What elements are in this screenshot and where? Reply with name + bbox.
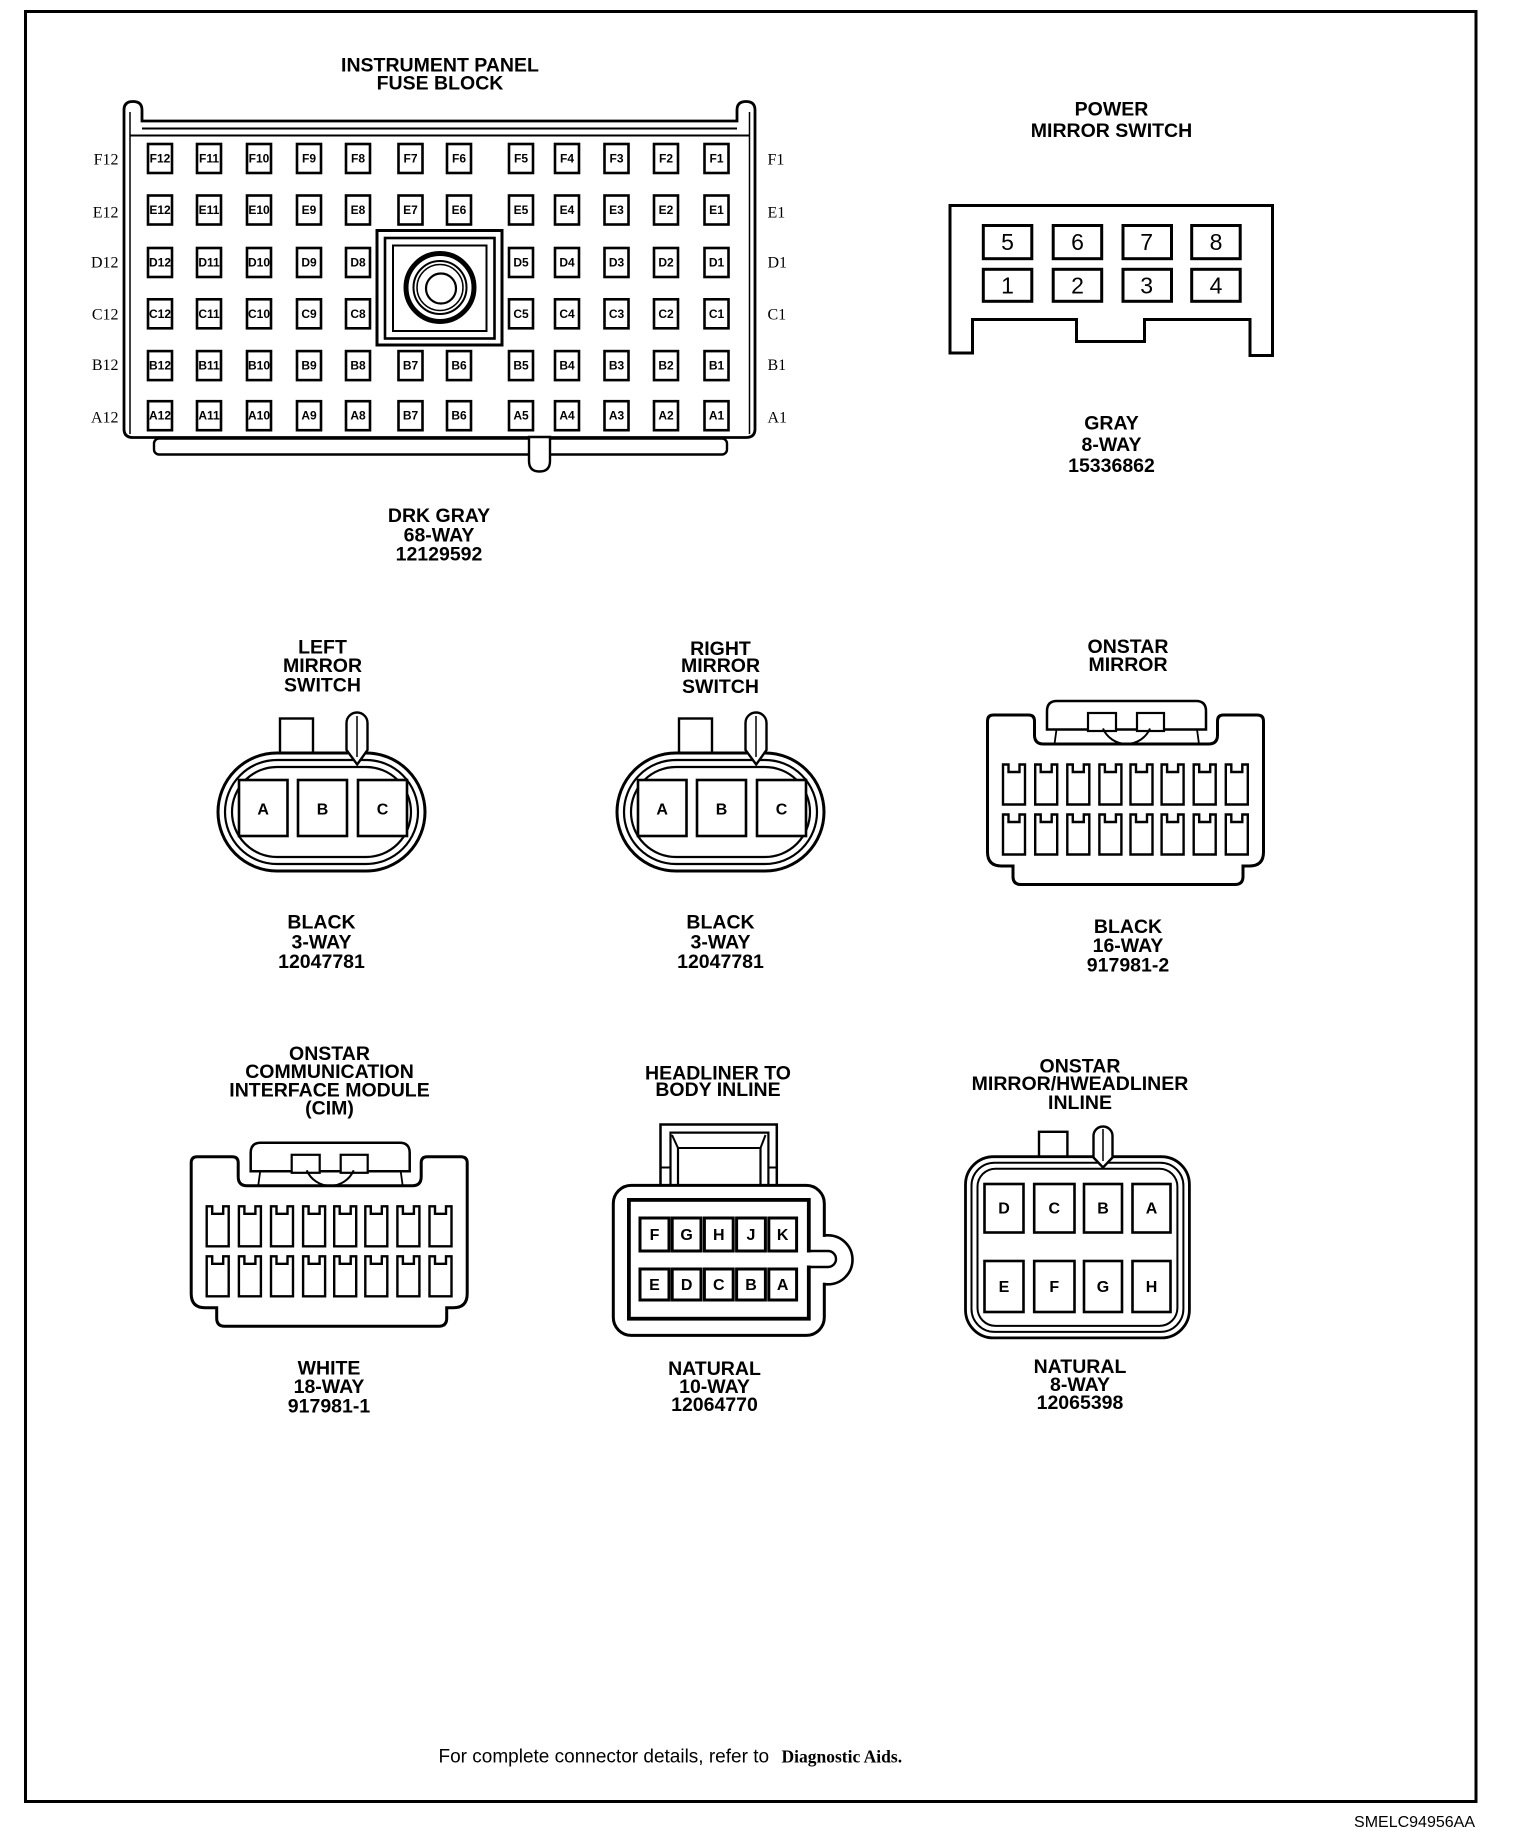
- svg-text:MIRROR: MIRROR: [1088, 654, 1167, 676]
- svg-text:E5: E5: [514, 203, 529, 217]
- svg-text:F1: F1: [709, 152, 723, 166]
- svg-text:C2: C2: [658, 307, 674, 321]
- svg-text:A: A: [1146, 1201, 1158, 1218]
- svg-text:D10: D10: [248, 256, 270, 270]
- svg-text:1: 1: [1001, 272, 1014, 298]
- svg-text:C1: C1: [768, 307, 787, 324]
- svg-text:F2: F2: [659, 152, 673, 166]
- svg-text:F8: F8: [351, 152, 365, 166]
- svg-text:B4: B4: [559, 359, 575, 373]
- svg-text:B11: B11: [198, 359, 220, 373]
- svg-text:C12: C12: [149, 307, 171, 321]
- svg-text:12047781: 12047781: [677, 951, 764, 973]
- svg-text:8: 8: [1210, 229, 1223, 255]
- svg-text:MIRROR: MIRROR: [283, 655, 362, 677]
- svg-text:E12: E12: [93, 205, 119, 222]
- svg-text:E: E: [999, 1279, 1010, 1296]
- svg-text:A5: A5: [513, 409, 529, 423]
- svg-text:C3: C3: [609, 307, 625, 321]
- svg-text:A8: A8: [350, 409, 366, 423]
- svg-text:C8: C8: [350, 307, 366, 321]
- svg-text:E10: E10: [248, 203, 270, 217]
- svg-text:BLACK: BLACK: [686, 912, 754, 934]
- svg-text:D9: D9: [301, 256, 317, 270]
- svg-text:B12: B12: [149, 359, 171, 373]
- svg-text:B: B: [745, 1277, 757, 1294]
- svg-text:INLINE: INLINE: [1048, 1092, 1112, 1114]
- svg-text:D: D: [681, 1277, 693, 1294]
- svg-text:FUSE BLOCK: FUSE BLOCK: [377, 73, 504, 95]
- svg-text:C5: C5: [513, 307, 529, 321]
- svg-text:A12: A12: [149, 409, 171, 423]
- svg-text:D1: D1: [709, 256, 725, 270]
- svg-text:E: E: [649, 1277, 660, 1294]
- svg-text:E6: E6: [452, 203, 467, 217]
- svg-text:15336862: 15336862: [1068, 455, 1155, 477]
- svg-text:C11: C11: [198, 307, 220, 321]
- svg-text:12064770: 12064770: [671, 1394, 758, 1416]
- svg-text:D4: D4: [559, 256, 575, 270]
- svg-text:A12: A12: [91, 410, 119, 427]
- svg-text:J: J: [747, 1227, 756, 1244]
- svg-text:12065398: 12065398: [1037, 1392, 1124, 1414]
- svg-text:F9: F9: [302, 152, 316, 166]
- svg-text:F4: F4: [560, 152, 574, 166]
- svg-text:POWER: POWER: [1075, 98, 1149, 120]
- svg-text:D: D: [998, 1201, 1010, 1218]
- svg-text:917981-1: 917981-1: [288, 1396, 371, 1418]
- svg-text:A4: A4: [559, 409, 575, 423]
- svg-text:E1: E1: [709, 203, 724, 217]
- svg-text:C10: C10: [248, 307, 270, 321]
- svg-text:C4: C4: [559, 307, 575, 321]
- svg-text:F6: F6: [452, 152, 466, 166]
- svg-text:12129592: 12129592: [396, 544, 483, 566]
- svg-text:5: 5: [1001, 229, 1014, 255]
- svg-text:SWITCH: SWITCH: [682, 676, 759, 698]
- svg-text:12047781: 12047781: [278, 951, 365, 973]
- svg-text:B6: B6: [451, 359, 467, 373]
- svg-text:G: G: [680, 1227, 692, 1244]
- svg-text:E12: E12: [149, 203, 171, 217]
- svg-text:(CIM): (CIM): [305, 1098, 354, 1120]
- svg-text:E4: E4: [560, 203, 575, 217]
- svg-text:3: 3: [1140, 272, 1153, 298]
- svg-text:F12: F12: [94, 151, 119, 168]
- svg-text:E1: E1: [768, 205, 786, 222]
- svg-text:B5: B5: [513, 359, 529, 373]
- svg-text:F11: F11: [199, 152, 219, 166]
- svg-text:A10: A10: [248, 409, 270, 423]
- svg-text:A1: A1: [709, 409, 725, 423]
- svg-text:D12: D12: [149, 256, 171, 270]
- svg-text:D3: D3: [609, 256, 625, 270]
- svg-text:3-WAY: 3-WAY: [292, 932, 352, 954]
- svg-text:F1: F1: [768, 151, 785, 168]
- svg-text:A1: A1: [768, 410, 788, 427]
- svg-text:4: 4: [1210, 272, 1223, 298]
- svg-text:MIRROR: MIRROR: [681, 655, 760, 677]
- svg-text:For complete connector details: For complete connector details, refer to: [439, 1747, 770, 1768]
- svg-text:GRAY: GRAY: [1084, 413, 1139, 435]
- svg-text:BODY INLINE: BODY INLINE: [655, 1079, 780, 1101]
- svg-text:A: A: [777, 1277, 789, 1294]
- svg-text:D8: D8: [350, 256, 366, 270]
- svg-text:B9: B9: [301, 359, 317, 373]
- svg-text:F5: F5: [514, 152, 528, 166]
- svg-text:D1: D1: [768, 255, 788, 272]
- svg-text:H: H: [1146, 1279, 1158, 1296]
- svg-text:D12: D12: [91, 255, 119, 272]
- svg-text:Diagnostic Aids.: Diagnostic Aids.: [782, 1747, 903, 1767]
- svg-text:F: F: [1049, 1279, 1059, 1296]
- svg-text:F10: F10: [249, 152, 270, 166]
- svg-text:D11: D11: [198, 256, 220, 270]
- svg-text:E11: E11: [199, 203, 220, 217]
- svg-text:A9: A9: [301, 409, 317, 423]
- svg-text:B2: B2: [658, 359, 674, 373]
- svg-text:B: B: [1097, 1201, 1109, 1218]
- svg-text:3-WAY: 3-WAY: [691, 932, 751, 954]
- svg-text:F7: F7: [403, 152, 417, 166]
- svg-text:C12: C12: [92, 307, 119, 324]
- svg-text:BLACK: BLACK: [287, 912, 355, 934]
- svg-text:2: 2: [1071, 272, 1084, 298]
- svg-text:B7: B7: [403, 409, 419, 423]
- svg-text:G: G: [1097, 1279, 1109, 1296]
- svg-text:A3: A3: [609, 409, 625, 423]
- svg-text:D5: D5: [513, 256, 529, 270]
- svg-text:7: 7: [1140, 229, 1153, 255]
- svg-text:SMELC94956AA: SMELC94956AA: [1354, 1814, 1475, 1831]
- svg-text:8-WAY: 8-WAY: [1082, 434, 1142, 456]
- svg-text:B12: B12: [92, 357, 119, 374]
- svg-text:C9: C9: [301, 307, 317, 321]
- svg-text:E8: E8: [351, 203, 366, 217]
- svg-text:E7: E7: [403, 203, 418, 217]
- svg-text:B7: B7: [403, 359, 419, 373]
- svg-text:B10: B10: [248, 359, 270, 373]
- svg-text:D2: D2: [658, 256, 674, 270]
- svg-text:B1: B1: [709, 359, 725, 373]
- svg-text:917981-2: 917981-2: [1087, 955, 1170, 977]
- svg-text:SWITCH: SWITCH: [284, 675, 361, 697]
- svg-text:E3: E3: [609, 203, 624, 217]
- svg-text:K: K: [777, 1227, 789, 1244]
- svg-text:C: C: [1049, 1201, 1061, 1218]
- svg-text:C: C: [713, 1277, 725, 1294]
- svg-text:C1: C1: [709, 307, 725, 321]
- svg-text:F12: F12: [150, 152, 171, 166]
- svg-text:MIRROR SWITCH: MIRROR SWITCH: [1031, 120, 1192, 142]
- svg-text:6: 6: [1071, 229, 1084, 255]
- svg-text:E2: E2: [659, 203, 674, 217]
- svg-text:F: F: [650, 1227, 660, 1244]
- svg-text:B6: B6: [451, 409, 467, 423]
- svg-text:B8: B8: [350, 359, 366, 373]
- svg-text:A11: A11: [198, 409, 220, 423]
- svg-text:E9: E9: [302, 203, 317, 217]
- svg-text:F3: F3: [609, 152, 623, 166]
- svg-text:H: H: [713, 1227, 725, 1244]
- svg-text:B3: B3: [609, 359, 625, 373]
- svg-text:A2: A2: [658, 409, 674, 423]
- svg-text:B1: B1: [768, 357, 787, 374]
